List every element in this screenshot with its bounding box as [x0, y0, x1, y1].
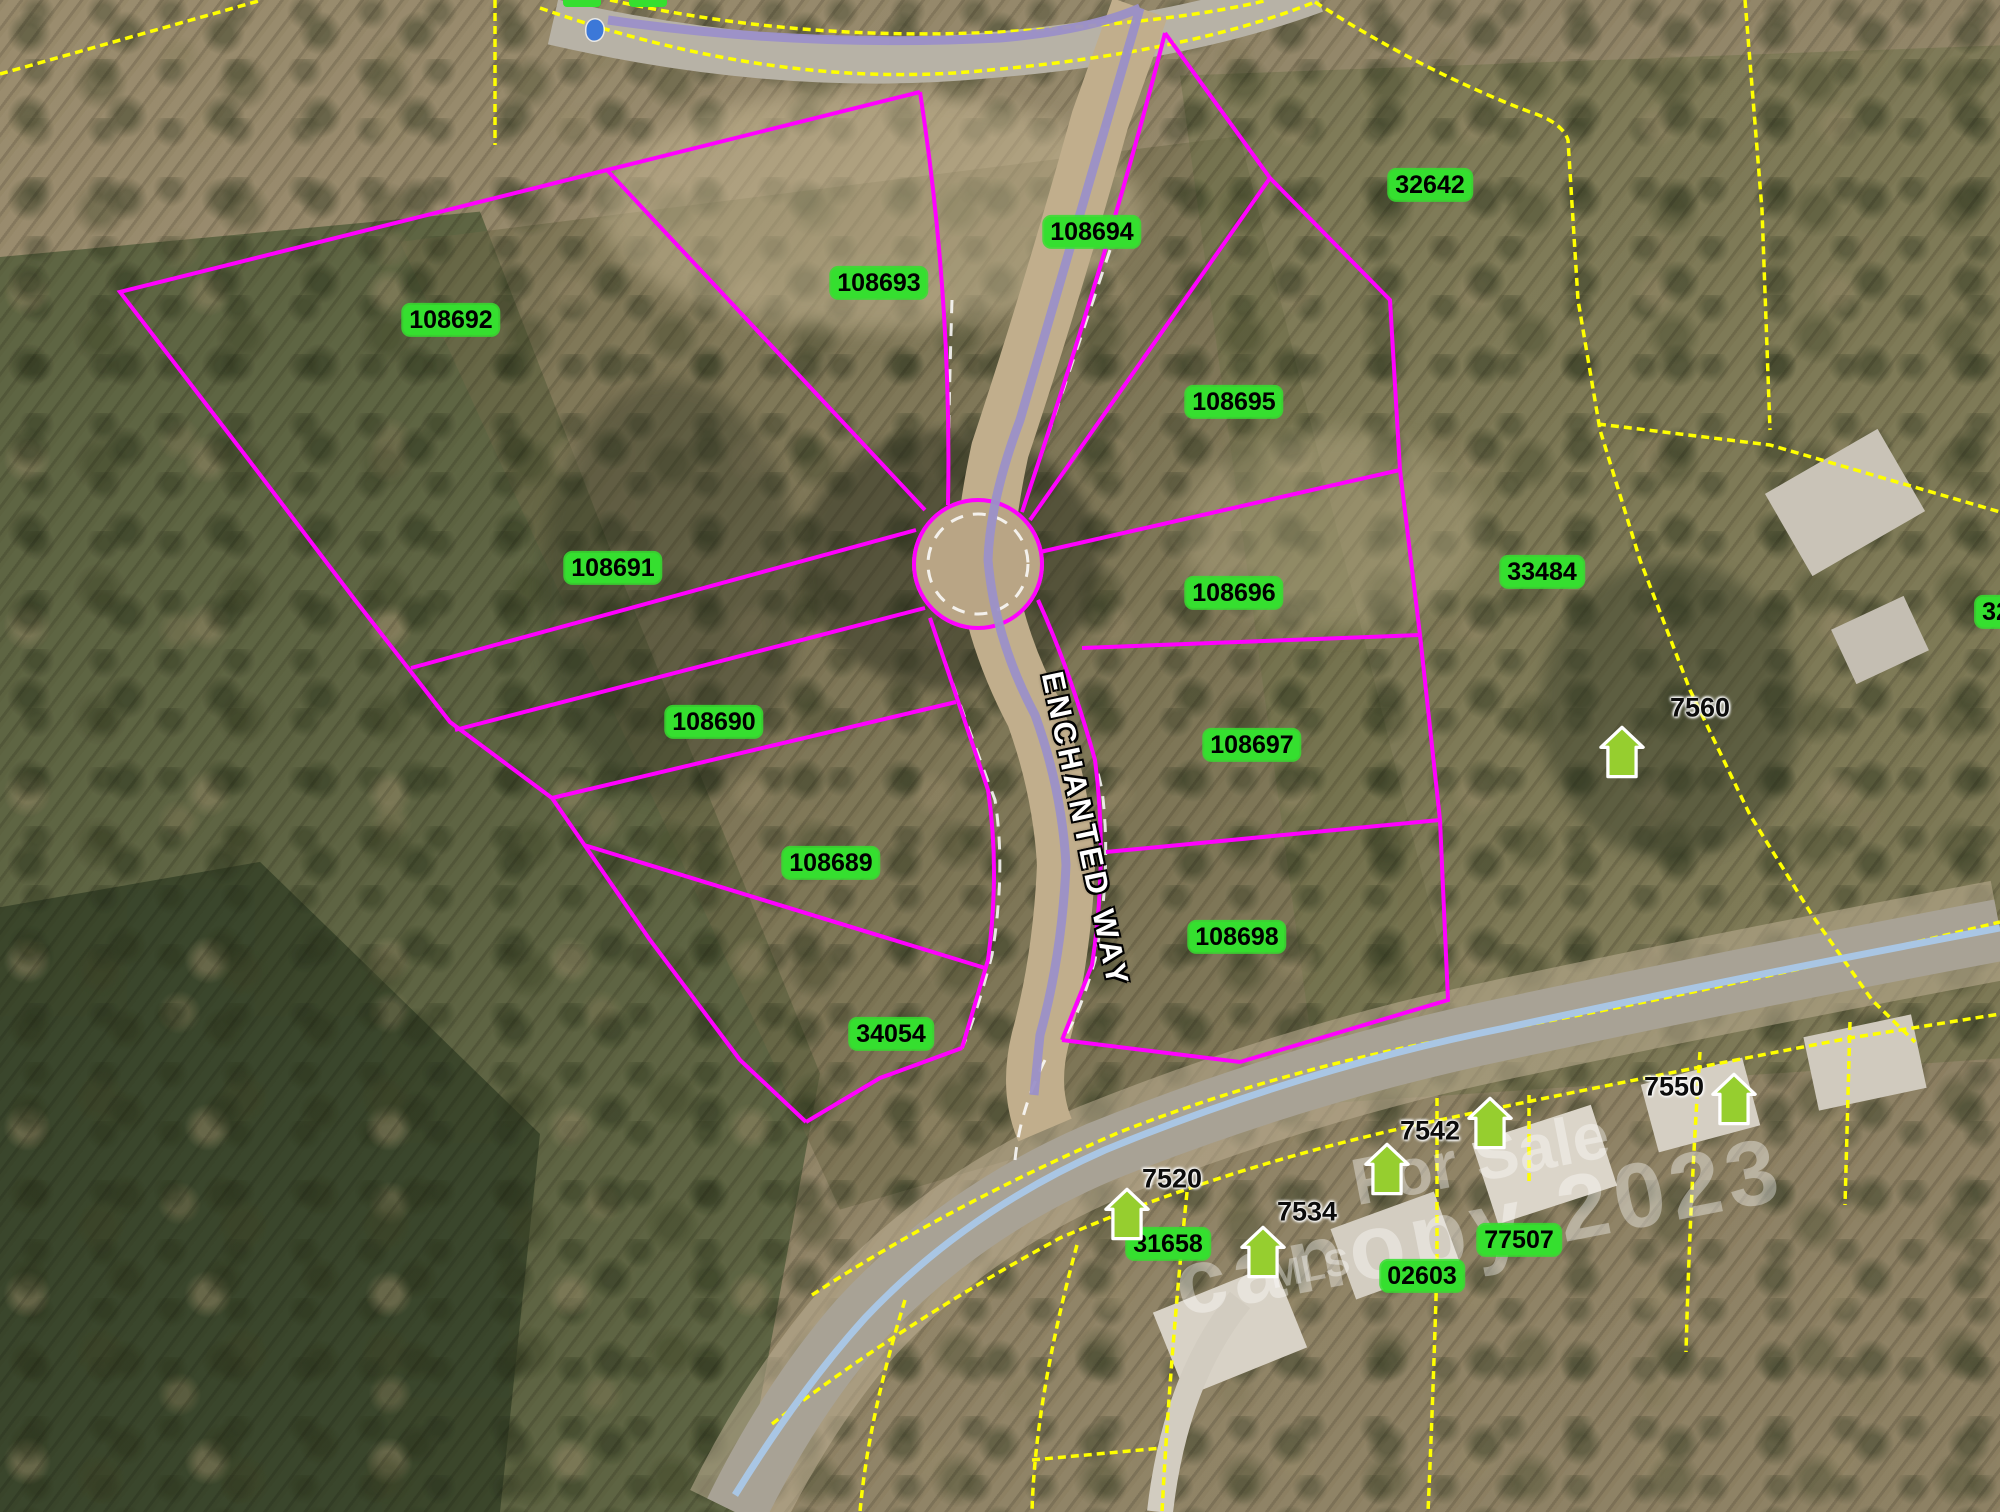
- parcel-id-label: 33484: [1501, 557, 1583, 587]
- parcel-id-label: 32642: [1389, 170, 1471, 200]
- address-label: 7560: [1670, 693, 1730, 724]
- house-marker-icon[interactable]: [1103, 1187, 1151, 1241]
- aerial-map-viewport[interactable]: ENCHANTED WAY For Sale canopy 2023 MLS 1…: [0, 0, 2000, 1512]
- parcel-id-label: 108690: [666, 707, 761, 737]
- parcel-id-label: 32: [1976, 597, 2000, 627]
- parcel-id-label: 108697: [1204, 730, 1299, 760]
- address-label: 7534: [1277, 1197, 1337, 1228]
- parcel-id-label: 34054: [850, 1019, 932, 1049]
- address-label: 7550: [1644, 1072, 1704, 1103]
- map-linework[interactable]: [0, 0, 2000, 1512]
- parcel-id-label: 108692: [403, 305, 498, 335]
- house-marker-icon[interactable]: [1239, 1225, 1287, 1279]
- clipped-parcel-label: [629, 0, 667, 7]
- parcel-id-label: 108689: [783, 848, 878, 878]
- parcel-id-label: 108693: [831, 268, 926, 298]
- clipped-parcel-label: [563, 0, 601, 7]
- house-marker-icon[interactable]: [1598, 725, 1646, 779]
- parcel-id-label: 108691: [565, 553, 660, 583]
- parcel-id-label: 77507: [1478, 1225, 1560, 1255]
- parcel-id-label: 02603: [1381, 1261, 1463, 1291]
- house-marker-icon[interactable]: [1710, 1072, 1758, 1126]
- parcel-id-label: 108694: [1044, 217, 1139, 247]
- parcel-id-label: 108698: [1189, 922, 1284, 952]
- parcel-id-label: 108696: [1186, 578, 1281, 608]
- parcel-boundaries-yellow: [0, 0, 2000, 1512]
- house-marker-icon[interactable]: [1363, 1142, 1411, 1196]
- house-marker-icon[interactable]: [1466, 1096, 1514, 1150]
- parcel-id-label: 108695: [1186, 387, 1281, 417]
